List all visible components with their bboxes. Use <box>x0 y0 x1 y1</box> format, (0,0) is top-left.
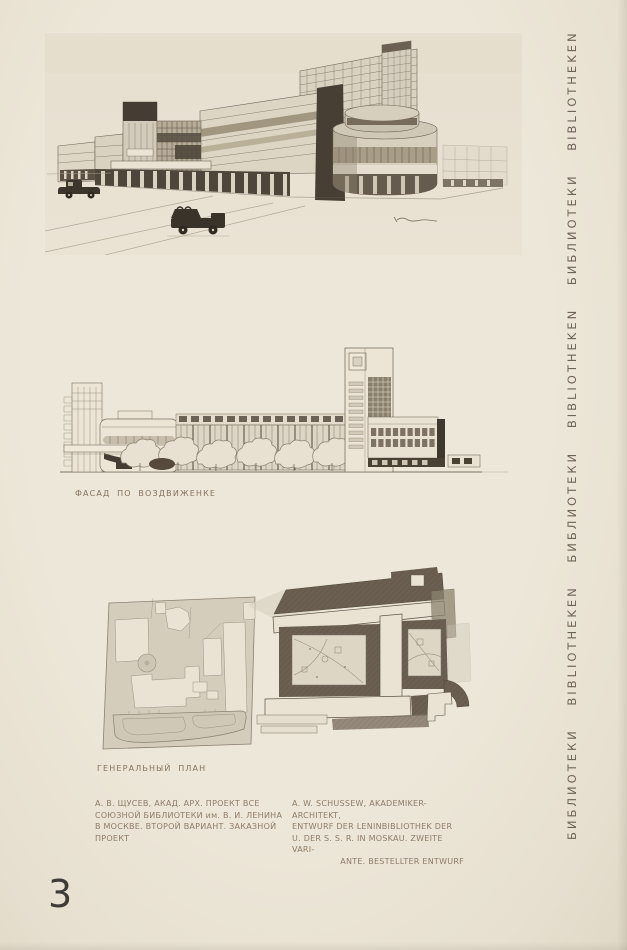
page-edge-shadow-bottom <box>0 942 627 950</box>
edge-title-vertical: БИБЛИОТЕКИ BIBLIOTHEKEN БИБЛИОТЕКИ BIBLI… <box>565 62 582 840</box>
caption-russian: А. В. ЩУСЕВ, АКАД. АРХ. ПРОЕКТ ВСЕ СОЮЗН… <box>95 798 291 844</box>
car-center <box>167 207 229 236</box>
perspective-drawing-illustration <box>45 33 522 255</box>
figure-general-plan <box>95 563 475 759</box>
caption-german: A. W. SCHUSSEW, AKADEMIKER-ARCHITEKT, EN… <box>292 798 464 867</box>
figure-facade-elevation <box>58 335 520 480</box>
page-number: 3 <box>48 874 72 914</box>
caption-line: ANTE. BESTELLTER ENTWURF <box>292 856 464 868</box>
caption-line: А. В. ЩУСЕВ, АКАД. АРХ. ПРОЕКТ ВСЕ <box>95 798 291 810</box>
caption-line: В МОСКВЕ. ВТОРОЙ ВАРИАНТ. ЗАКАЗНОЙ <box>95 821 291 833</box>
figure-perspective <box>45 33 522 255</box>
general-plan-illustration <box>95 563 475 759</box>
facade-elevation-illustration <box>58 335 520 480</box>
caption-line: ENTWURF DER LENINBIBLIOTHEK DER <box>292 821 464 833</box>
caption-line: A. W. SCHUSSEW, AKADEMIKER-ARCHITEKT, <box>292 798 464 821</box>
caption-line: ПРОЕКТ <box>95 833 291 845</box>
general-plan-label: ГЕНЕРАЛЬНЫЙ ПЛАН <box>97 764 206 773</box>
car-left <box>58 180 100 199</box>
page: ФАСАД ПО ВОЗДВИЖЕНКЕ <box>0 0 627 950</box>
page-edge-shadow-right <box>617 0 627 950</box>
facade-label: ФАСАД ПО ВОЗДВИЖЕНКЕ <box>75 489 216 498</box>
caption-line: U. DER S. S. R. IN MOSKAU. ZWEITE VARI- <box>292 833 464 856</box>
caption-line: СОЮЗНОЙ БИБЛИОТЕКИ им. В. И. ЛЕНИНА <box>95 810 291 822</box>
